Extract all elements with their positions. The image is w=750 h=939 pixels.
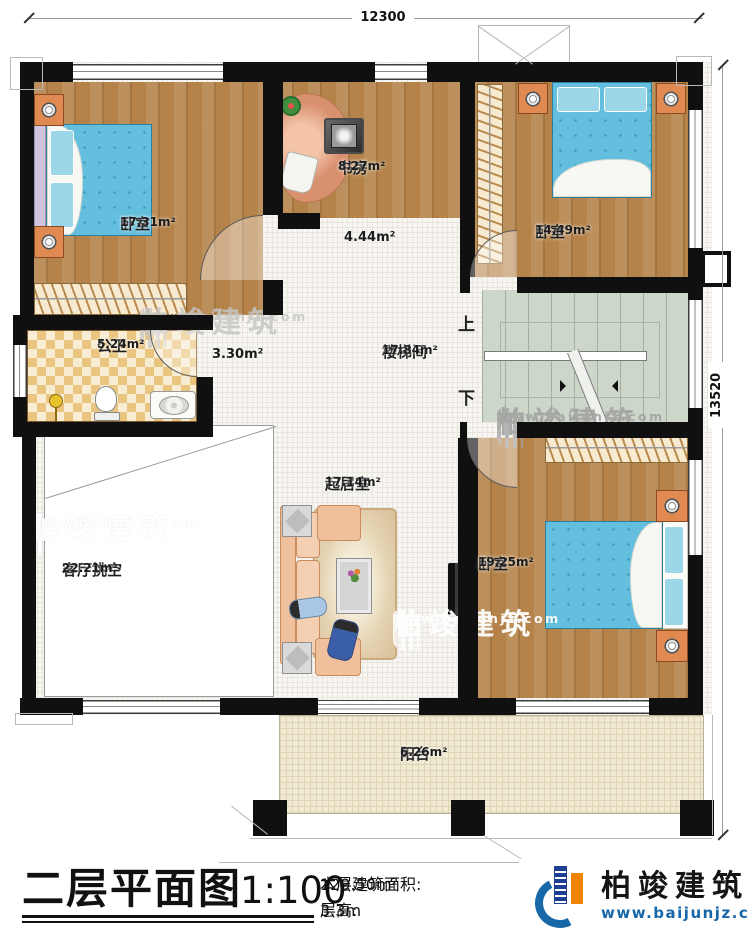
wall (263, 280, 283, 315)
wall (427, 62, 703, 82)
exterior-outline (15, 713, 73, 725)
room-area: 17.31m² (120, 216, 176, 229)
room-area: 4.44m² (344, 231, 395, 246)
flue-box (701, 251, 731, 287)
dimension-tick (718, 59, 729, 70)
pillow (664, 578, 684, 626)
balcony-column (680, 800, 714, 836)
dimension-tick (718, 829, 729, 840)
lamp-icon (40, 233, 58, 251)
nightstand (518, 83, 548, 114)
bed-sheet (553, 159, 651, 197)
logo-building-icon (554, 866, 567, 904)
ground-outline (219, 862, 519, 863)
wall (460, 80, 475, 277)
brand-logo-icon (533, 864, 595, 934)
window (688, 300, 703, 408)
table-flowers-icon (346, 567, 362, 583)
break-arrow-icon (612, 380, 618, 392)
brand-url: www.baijunjz.com (601, 906, 750, 921)
lamp-icon (662, 90, 680, 108)
wall (460, 422, 467, 438)
room-area: 3.30m² (212, 348, 263, 363)
bed-headboard (34, 124, 46, 236)
balcony-floor (279, 715, 704, 814)
nightstand (656, 83, 686, 114)
window (688, 110, 703, 248)
gable-line (515, 26, 570, 65)
wall (20, 62, 34, 315)
toilet-bowl (95, 386, 117, 412)
pillow (50, 130, 74, 176)
wall (278, 213, 320, 229)
break-arrow-icon (560, 380, 566, 392)
pillow (664, 526, 684, 574)
room-area: 5.24m² (97, 338, 144, 351)
dimension-width: 12300 (352, 10, 414, 26)
lamp-icon (40, 101, 58, 119)
floor-drain-icon (49, 394, 63, 408)
wall (197, 377, 213, 422)
brand-name: 柏竣建筑 (601, 872, 749, 902)
sliding-door (318, 700, 419, 714)
floor-height-value: 3.3m (320, 898, 361, 924)
room-area: 14.49m² (535, 224, 591, 237)
roof-gable-outline (478, 25, 570, 62)
wall (223, 62, 375, 82)
sink (150, 391, 196, 419)
armchair (317, 505, 361, 541)
wardrobe (34, 283, 187, 315)
wall (688, 555, 703, 698)
side-table (282, 642, 312, 674)
floor-plan: 柏竣建筑 www.baijunjz.com 柏竣建筑 www.baijunjz.… (0, 0, 750, 939)
sink-basin (159, 396, 189, 415)
wall (649, 698, 703, 715)
window (13, 345, 27, 397)
room-area: 19.25m² (478, 556, 534, 569)
wall (517, 422, 703, 438)
nightstand (34, 226, 64, 258)
nightstand (34, 94, 64, 126)
drawing-title: 二层平面图 (22, 868, 242, 910)
window (83, 700, 220, 714)
dimension-line (722, 66, 723, 836)
wall (220, 698, 318, 715)
floor-area-value: 129.50m² (320, 872, 398, 898)
balcony-column (253, 800, 287, 836)
title-underline (22, 921, 314, 923)
toilet-tank (94, 412, 120, 421)
computer-monitor (324, 118, 364, 154)
room-area: 17.84m² (382, 344, 438, 357)
bed-sheet (630, 522, 662, 628)
room-area: 22.21m² (62, 562, 118, 575)
room-area: 6.26m² (400, 746, 447, 759)
lamp-icon (663, 497, 681, 515)
wall (460, 277, 470, 293)
coffee-table (336, 558, 372, 614)
bed (545, 521, 663, 629)
pillow (557, 87, 600, 112)
pillow (50, 182, 74, 228)
wall (263, 82, 283, 215)
title-underline (22, 915, 314, 918)
stair-up-label: 上 (458, 310, 475, 335)
lamp-icon (524, 90, 542, 108)
nightstand (656, 490, 688, 522)
bed (552, 82, 652, 198)
wall (13, 315, 213, 330)
ground-outline (712, 715, 713, 835)
wall (419, 698, 516, 715)
balcony-column (451, 800, 485, 836)
wall (13, 422, 213, 437)
pillow (604, 87, 647, 112)
room-area: 8.27m² (338, 160, 385, 173)
exterior-outline (10, 57, 43, 90)
room-area: 17.14m² (325, 476, 381, 489)
logo-building-icon (571, 873, 583, 904)
side-table (282, 505, 312, 537)
window (73, 64, 223, 80)
nightstand (656, 630, 688, 662)
monitor-screen (331, 124, 357, 148)
lamp-icon (663, 637, 681, 655)
exterior-outline (676, 56, 712, 86)
toilet-icon (94, 386, 120, 422)
wall (458, 438, 478, 698)
dimension-height: 13520 (708, 362, 726, 428)
window (516, 700, 649, 714)
gable-line (478, 26, 533, 65)
ground-outline (250, 838, 712, 839)
stair-down-label: 下 (458, 384, 475, 409)
wall (517, 277, 703, 293)
window (375, 64, 427, 80)
wall (22, 435, 36, 698)
window (688, 460, 703, 555)
drain-handle (55, 407, 57, 421)
stair-handrail (484, 351, 647, 361)
